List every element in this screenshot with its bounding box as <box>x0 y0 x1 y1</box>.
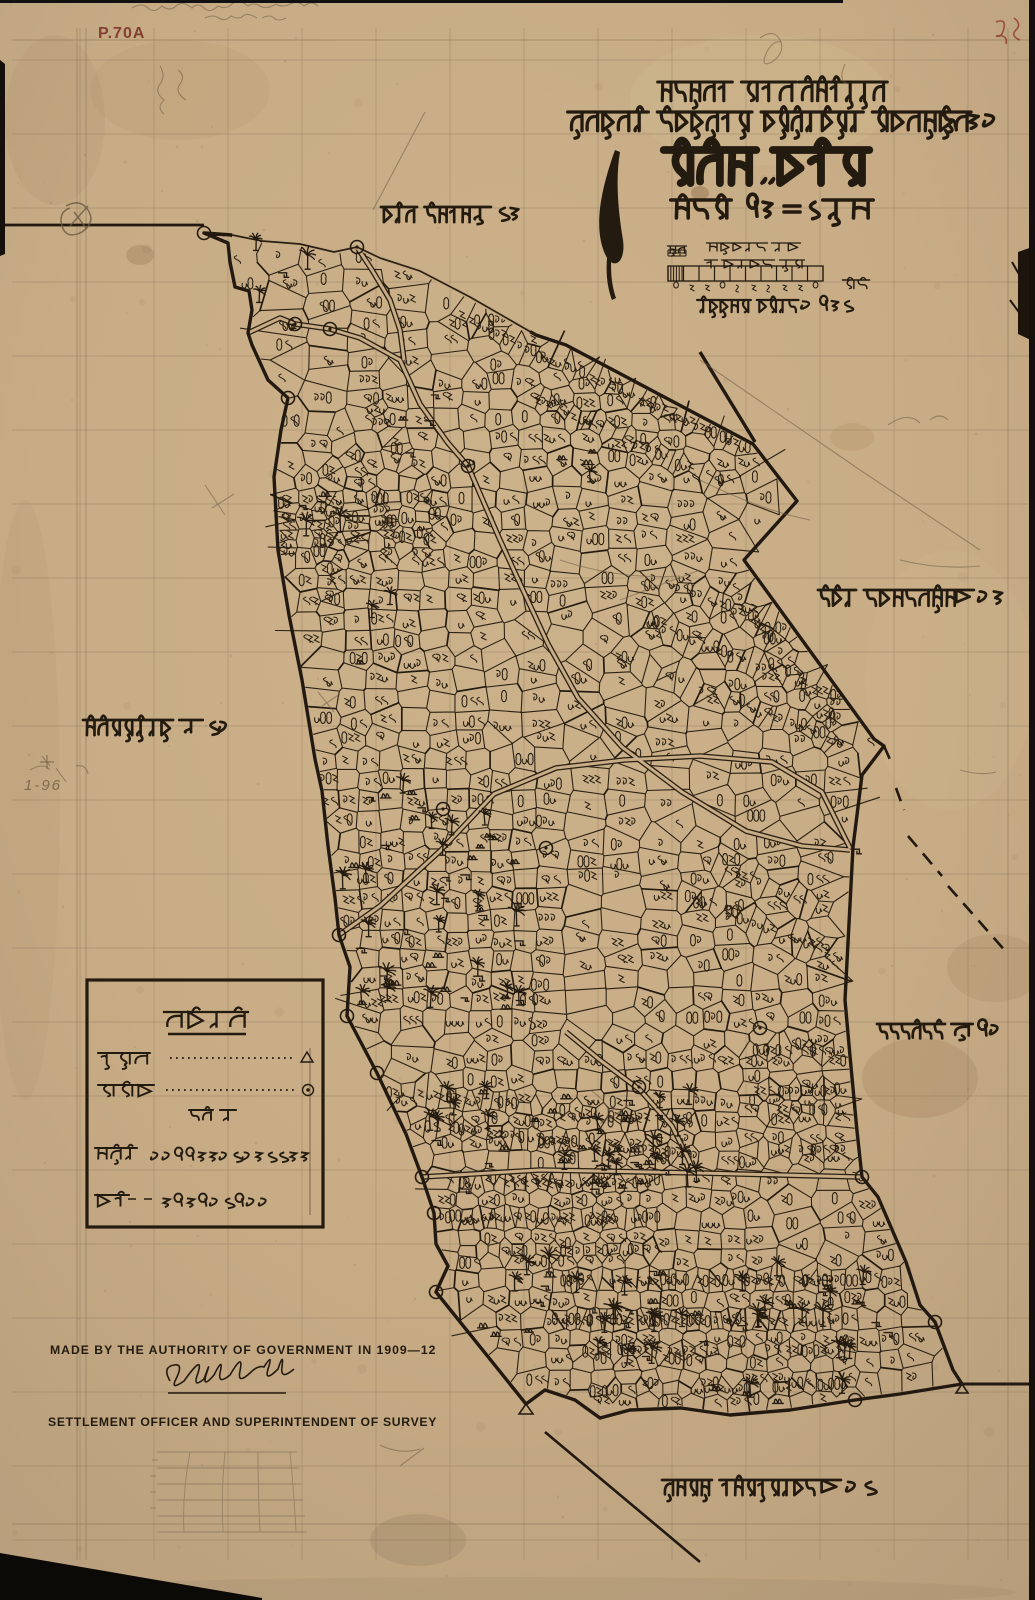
svg-text:1-96: 1-96 <box>24 777 62 794</box>
svg-text:P.70A: P.70A <box>98 25 145 42</box>
svg-text:MADE BY THE AUTHORITY OF GOVER: MADE BY THE AUTHORITY OF GOVERNMENT IN 1… <box>50 1343 436 1357</box>
svg-text:SETTLEMENT OFFICER AND SUPERIN: SETTLEMENT OFFICER AND SUPERINTENDENT OF… <box>48 1415 437 1429</box>
